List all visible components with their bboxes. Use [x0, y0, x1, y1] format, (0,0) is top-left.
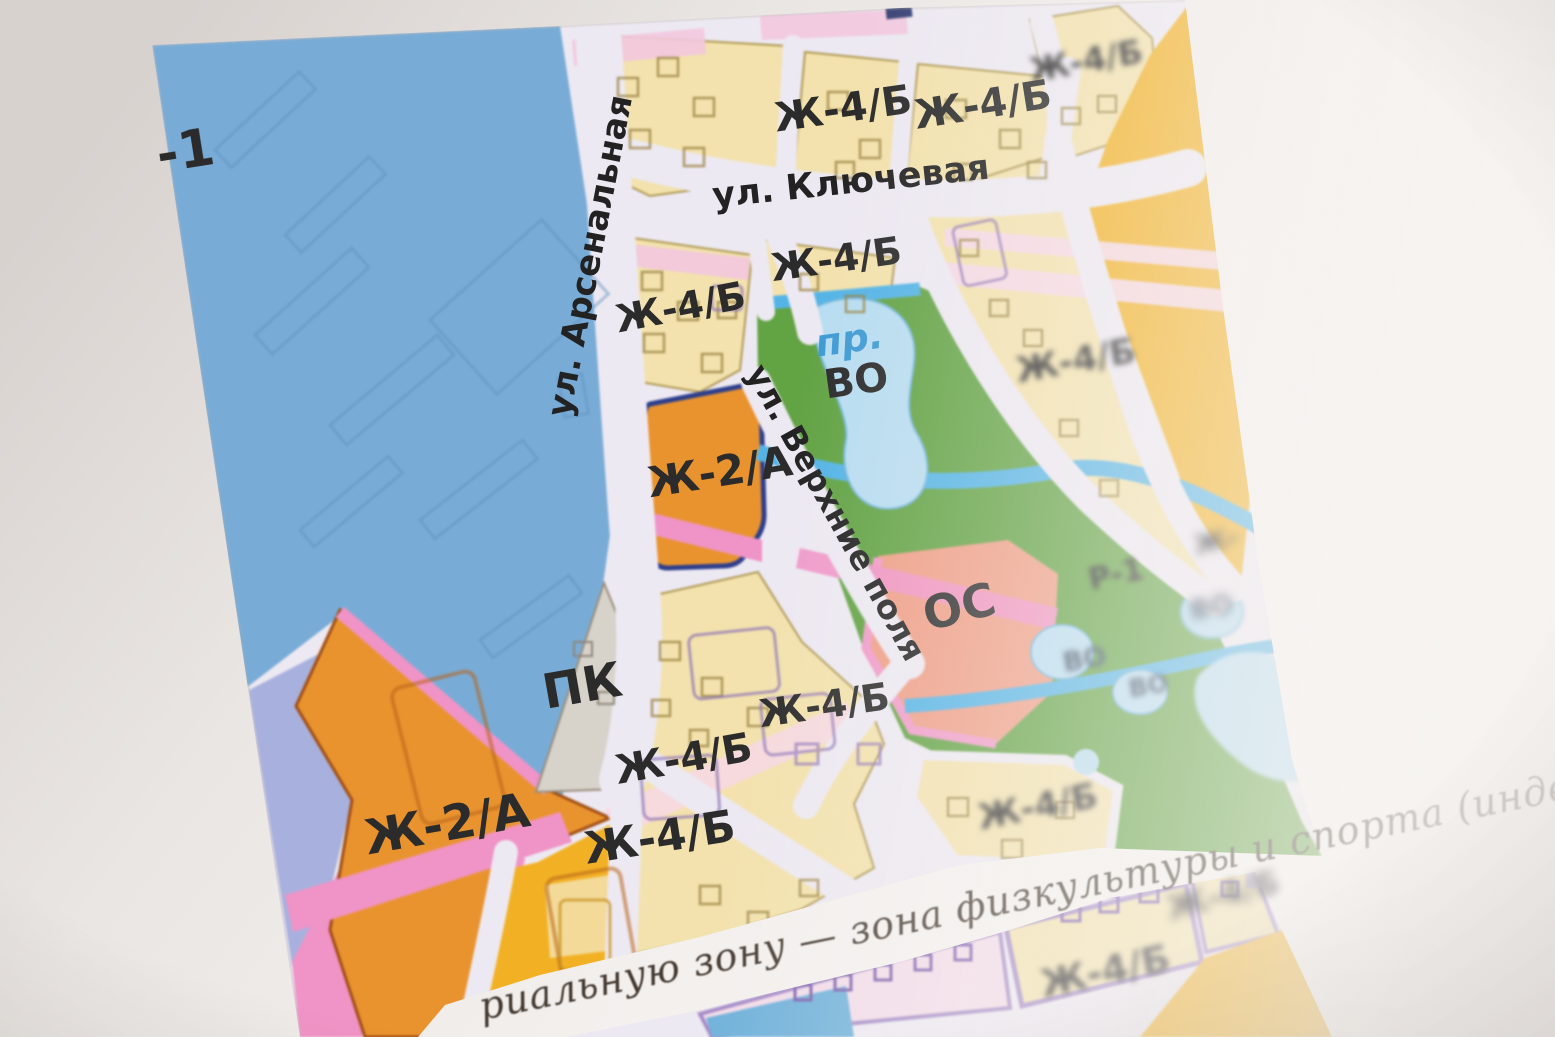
vignette-overlay	[0, 0, 1555, 1037]
zoning-map-photo: риальную зону — зона физкультуры и спорт…	[0, 0, 1555, 1037]
zoning-map-canvas: риальную зону — зона физкультуры и спорт…	[0, 0, 1555, 1037]
